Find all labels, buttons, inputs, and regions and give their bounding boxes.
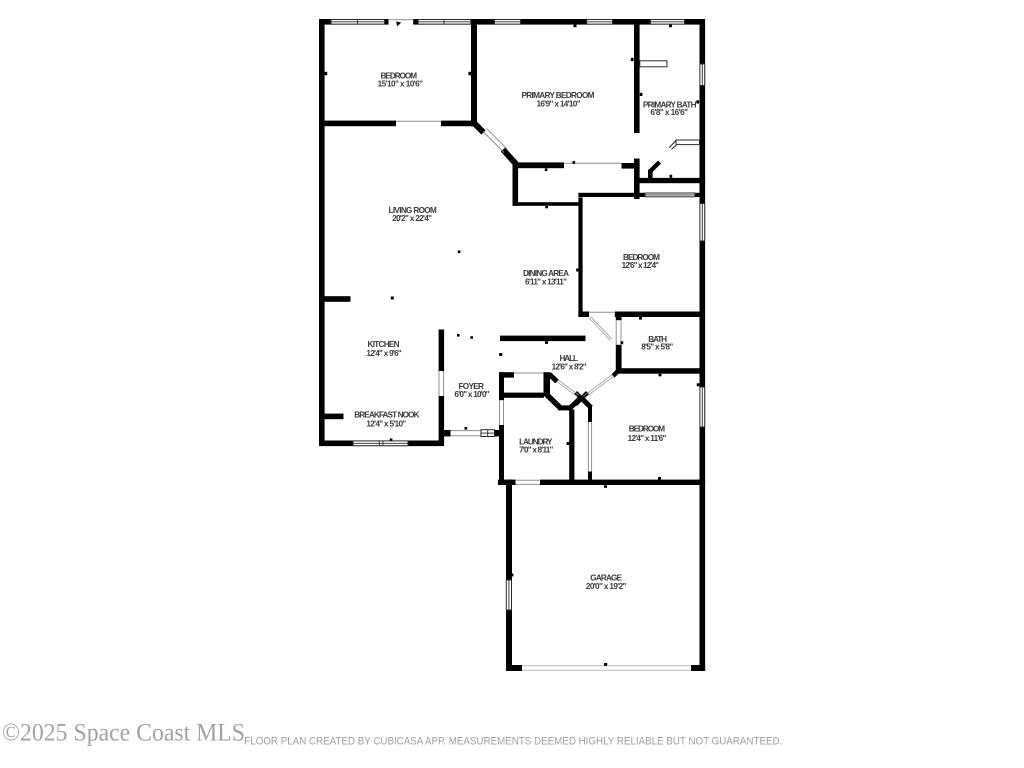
svg-text:6'0" x 10'0": 6'0" x 10'0" — [454, 390, 489, 399]
svg-text:12'4" x 9'6": 12'4" x 9'6" — [366, 349, 402, 358]
svg-text:KITCHEN: KITCHEN — [368, 340, 400, 349]
svg-text:15'10" x 10'6": 15'10" x 10'6" — [378, 80, 424, 89]
svg-text:12'4" x 11'6": 12'4" x 11'6" — [628, 434, 667, 443]
svg-text:7'0" x 8'11": 7'0" x 8'11" — [519, 445, 553, 454]
svg-text:FLOOR PLAN CREATED BY CUBICASA: FLOOR PLAN CREATED BY CUBICASA APP. MEAS… — [244, 735, 782, 747]
svg-text:12'6" x 12'4": 12'6" x 12'4" — [622, 261, 660, 270]
svg-text:20'2" x 22'4": 20'2" x 22'4" — [392, 214, 432, 223]
svg-text:8'5" x 5'8": 8'5" x 5'8" — [641, 342, 673, 351]
svg-text:BREAKFAST NOOK: BREAKFAST NOOK — [354, 411, 419, 420]
svg-text:16'9" x 14'10": 16'9" x 14'10" — [537, 99, 581, 108]
svg-text:20'0" x 19'2": 20'0" x 19'2" — [586, 582, 627, 591]
svg-text:BEDROOM: BEDROOM — [629, 425, 665, 434]
svg-text:12'6" x 8'2": 12'6" x 8'2" — [552, 362, 587, 371]
svg-text:6'8" x 16'6": 6'8" x 16'6" — [650, 108, 688, 117]
svg-text:6'11" x 13'11": 6'11" x 13'11" — [525, 278, 567, 287]
svg-text:12'4" x 5'10": 12'4" x 5'10" — [366, 420, 406, 429]
svg-text:©2025 Space Coast MLS: ©2025 Space Coast MLS — [2, 720, 245, 747]
